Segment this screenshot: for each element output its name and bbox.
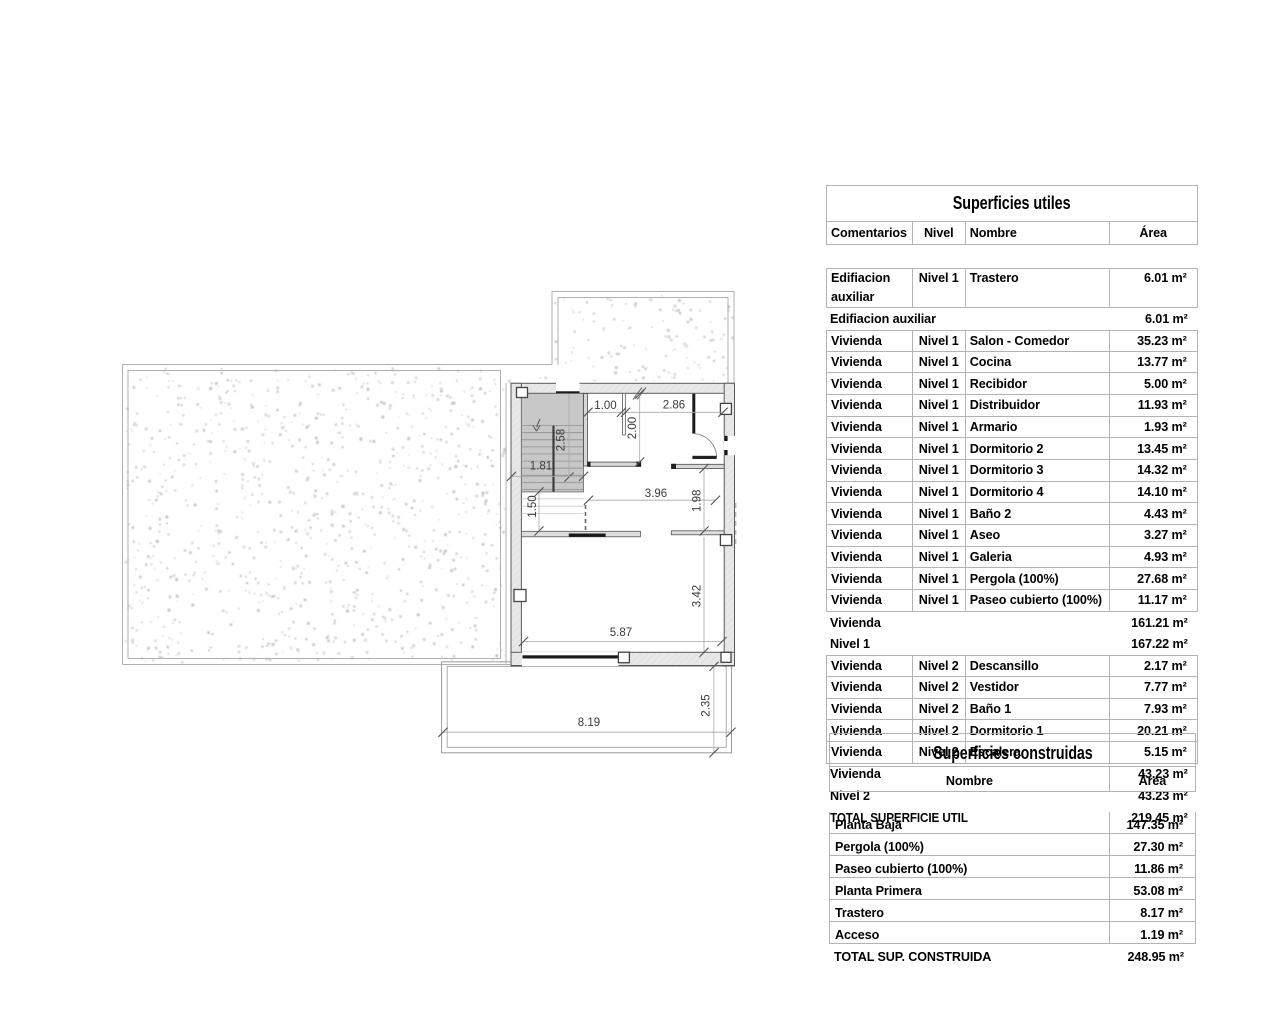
svg-text:3.96: 3.96: [645, 488, 667, 500]
svg-text:3.42: 3.42: [691, 585, 703, 607]
svg-text:2.00: 2.00: [627, 417, 639, 439]
svg-text:8.19: 8.19: [578, 717, 600, 729]
svg-text:1.00: 1.00: [594, 400, 616, 412]
svg-text:1.81: 1.81: [530, 461, 552, 473]
svg-text:2.86: 2.86: [663, 400, 685, 412]
svg-text:2.35: 2.35: [701, 694, 713, 716]
svg-text:1.50: 1.50: [527, 495, 539, 517]
svg-text:5.87: 5.87: [610, 627, 632, 639]
svg-text:1.98: 1.98: [691, 490, 703, 512]
svg-text:2.58: 2.58: [556, 429, 568, 451]
